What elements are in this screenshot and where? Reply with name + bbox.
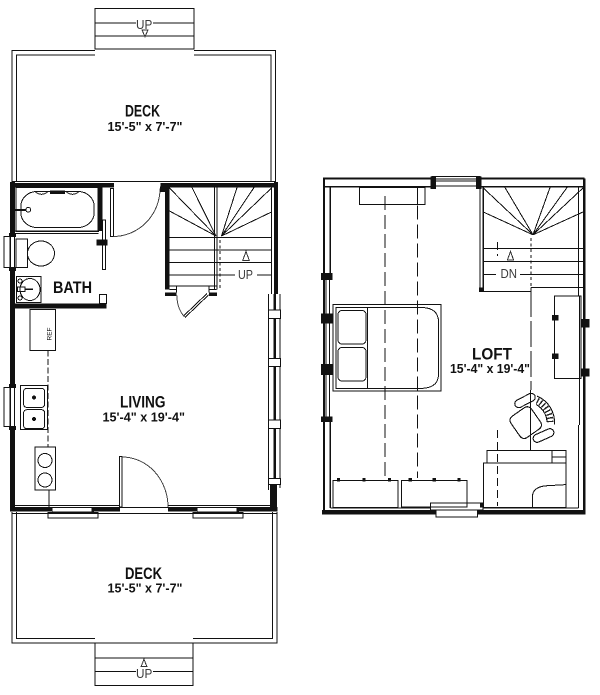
svg-text:DECK: DECK [125, 102, 161, 121]
svg-text:UP: UP [136, 667, 152, 681]
svg-text:15'-4" x 19'-4": 15'-4" x 19'-4" [450, 361, 530, 376]
svg-text:DN: DN [501, 267, 518, 281]
svg-text:15'-5" x 7'-7": 15'-5" x 7'-7" [108, 581, 183, 596]
svg-text:15'-4" x 19'-4": 15'-4" x 19'-4" [103, 410, 186, 425]
svg-text:REF: REF [47, 327, 54, 340]
svg-text:BATH: BATH [53, 278, 92, 297]
svg-text:15'-5" x 7'-7": 15'-5" x 7'-7" [108, 119, 183, 134]
svg-text:UP: UP [238, 268, 253, 282]
